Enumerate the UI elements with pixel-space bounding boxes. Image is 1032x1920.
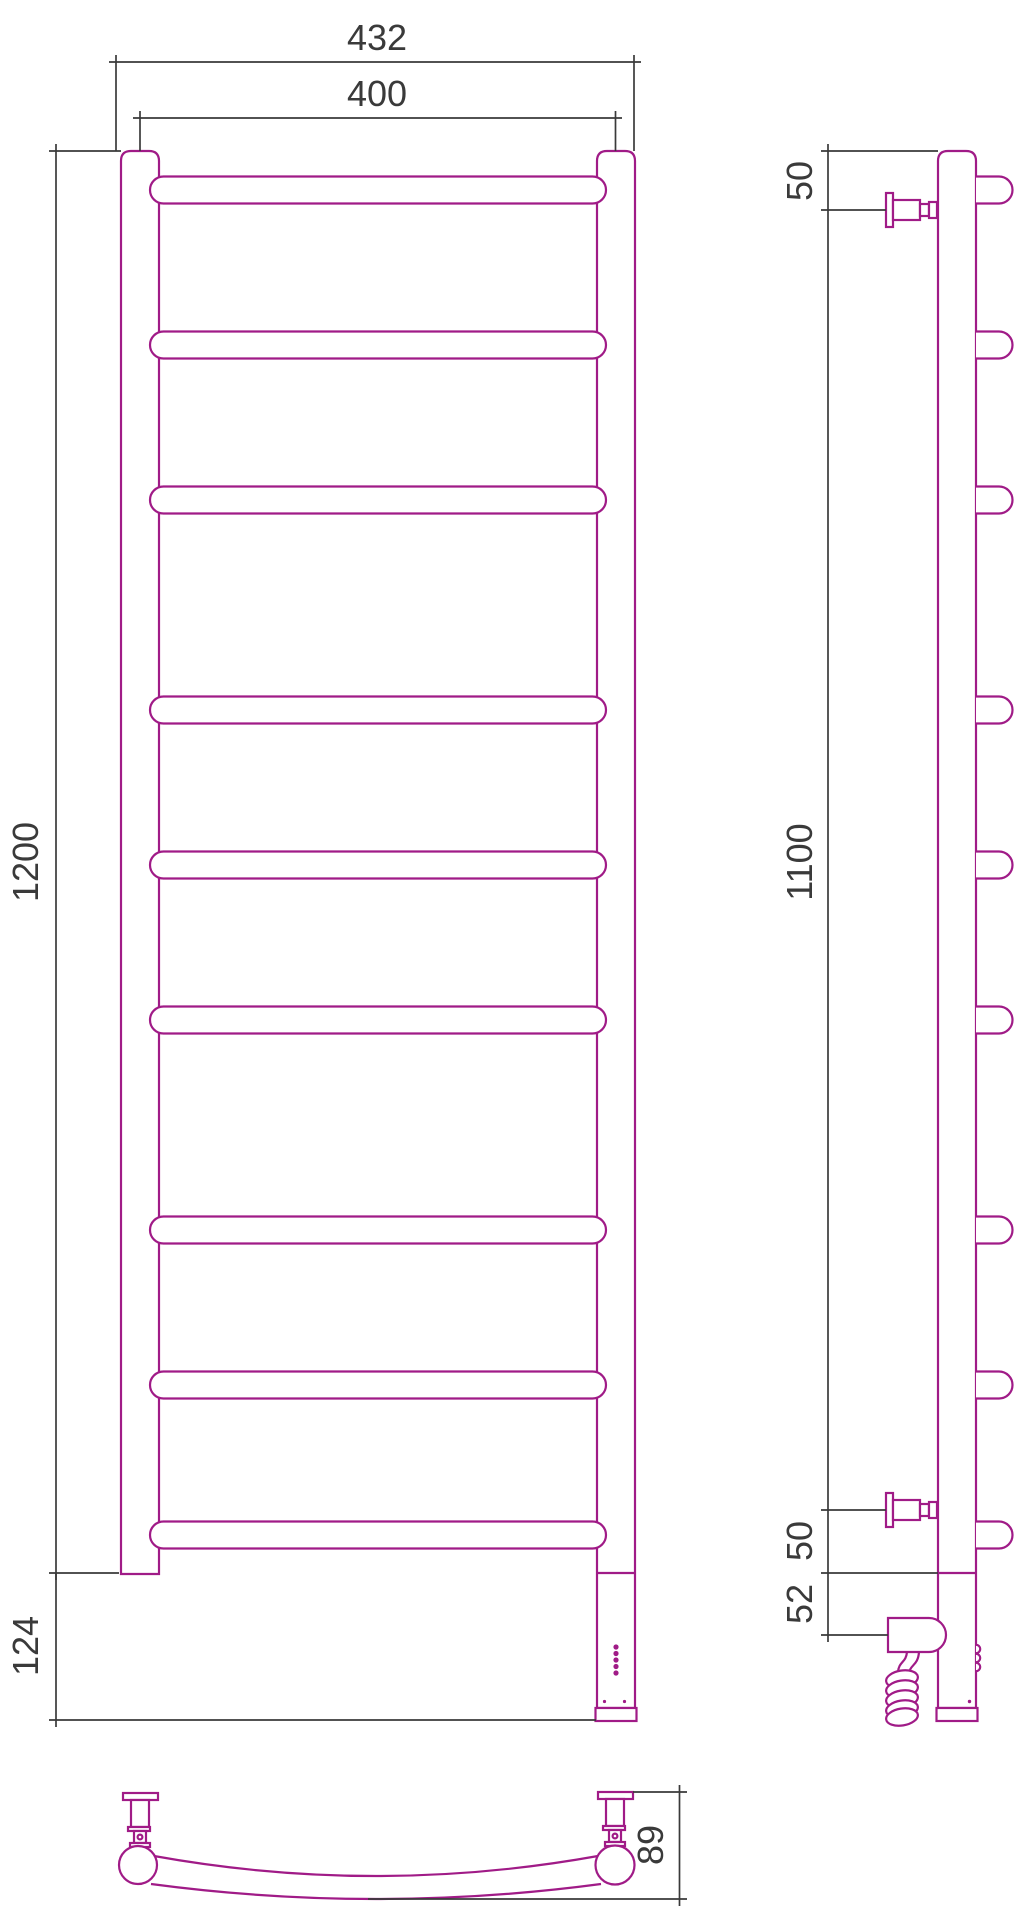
technical-drawing-canvas: 432 400 1200 124 xyxy=(0,0,1032,1920)
dim-center-width-label: 400 xyxy=(347,73,407,114)
rung-end xyxy=(976,697,1013,724)
technical-drawing-page: 432 400 1200 124 xyxy=(0,0,1032,1920)
dim-heater-offset-label: 52 xyxy=(779,1584,820,1624)
rung-end xyxy=(976,177,1013,204)
dim-bracket-span-label: 1100 xyxy=(779,823,820,900)
side-tube xyxy=(938,151,976,1708)
rung-end xyxy=(976,1217,1013,1244)
housing-screw-dot xyxy=(603,1700,606,1703)
led-bump xyxy=(976,1663,980,1671)
dim-top-bracket-offset-label: 50 xyxy=(779,161,820,201)
front-right-tube xyxy=(597,151,635,1708)
bowed-tube xyxy=(151,1856,601,1899)
top-view: 89 xyxy=(119,1785,687,1906)
housing-screw-dot xyxy=(623,1700,626,1703)
side-rung-ends xyxy=(976,177,1013,1549)
dim-overall-width-label: 432 xyxy=(347,17,407,58)
wall-bracket-bottom xyxy=(886,1493,937,1527)
wall-bracket-top xyxy=(886,193,937,227)
rung xyxy=(150,1007,606,1034)
dim-depth-label: 89 xyxy=(630,1825,671,1865)
led-dot xyxy=(613,1670,618,1675)
led-dot xyxy=(613,1651,618,1656)
led-bump xyxy=(976,1654,980,1662)
rung xyxy=(150,1217,606,1244)
led-bump xyxy=(976,1645,980,1653)
dim-bottom-bracket-offset-label: 50 xyxy=(779,1521,820,1561)
rung xyxy=(150,852,606,879)
led-dot xyxy=(613,1644,618,1649)
top-view-bracket-right xyxy=(598,1792,633,1846)
top-view-bracket-left xyxy=(123,1793,158,1847)
front-rungs xyxy=(150,177,606,1549)
power-cable-coil xyxy=(885,1668,919,1728)
side-view: 50 1100 50 52 xyxy=(779,144,1013,1728)
rung xyxy=(150,1522,606,1549)
rung-end xyxy=(976,1372,1013,1399)
side-screw-dot xyxy=(968,1700,971,1703)
heating-element xyxy=(888,1618,946,1652)
rung-end xyxy=(976,852,1013,879)
rung-end xyxy=(976,332,1013,359)
rung xyxy=(150,1372,606,1399)
rung xyxy=(150,697,606,724)
rung xyxy=(150,487,606,514)
side-led-bumps xyxy=(976,1645,980,1671)
led-dot xyxy=(613,1664,618,1669)
front-bottom-cap xyxy=(596,1708,637,1721)
tube-end-left xyxy=(119,1846,157,1884)
dim-overall-height-label: 1200 xyxy=(5,822,46,902)
rung-end xyxy=(976,487,1013,514)
rung xyxy=(150,332,606,359)
side-dimension-lines xyxy=(821,144,938,1642)
rung-end xyxy=(976,1522,1013,1549)
led-dot xyxy=(613,1657,618,1662)
dim-base-height-label: 124 xyxy=(5,1616,46,1676)
front-view: 432 400 1200 124 xyxy=(5,17,641,1727)
side-bottom-cap xyxy=(937,1708,978,1721)
rung-end xyxy=(976,1007,1013,1034)
tube-end-right xyxy=(596,1846,635,1885)
rung xyxy=(150,177,606,204)
